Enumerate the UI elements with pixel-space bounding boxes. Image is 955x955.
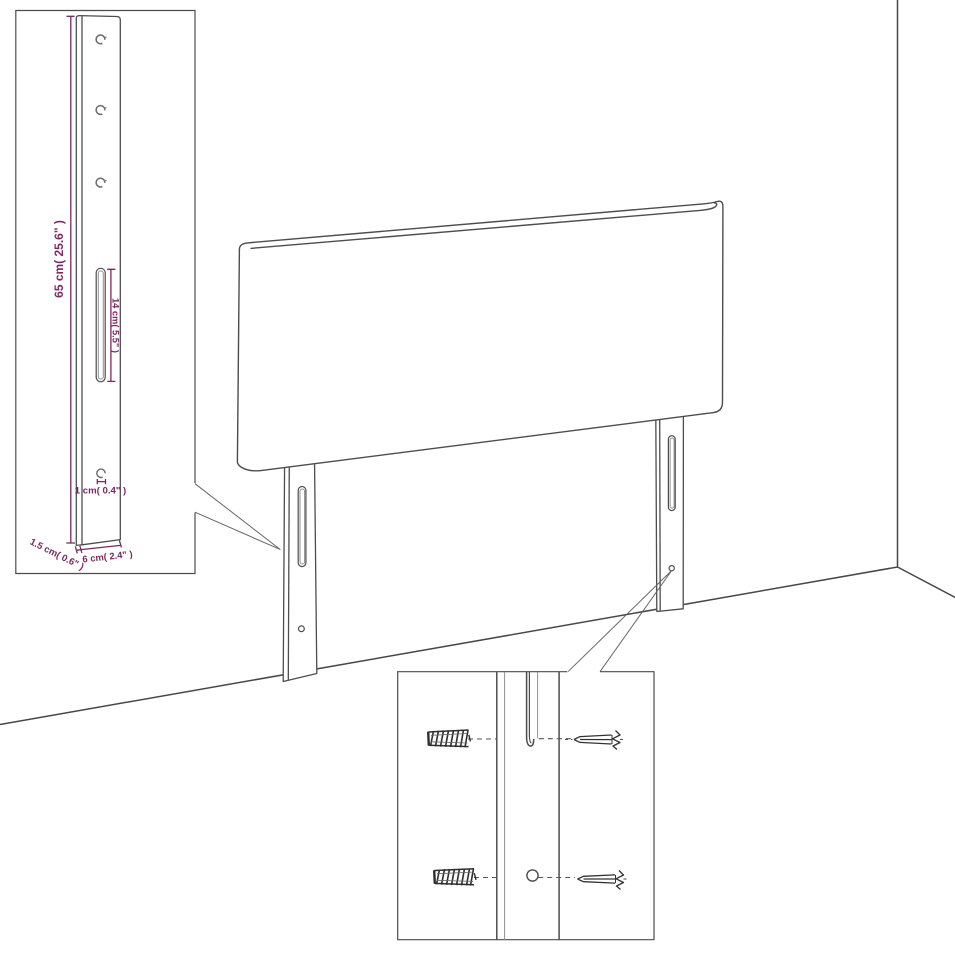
svg-text:14 cm( 5.5" ): 14 cm( 5.5" ) [110, 298, 120, 353]
svg-text:65 cm( 25.6" ): 65 cm( 25.6" ) [52, 220, 66, 298]
svg-text:1 cm( 0.4" ): 1 cm( 0.4" ) [75, 485, 126, 496]
